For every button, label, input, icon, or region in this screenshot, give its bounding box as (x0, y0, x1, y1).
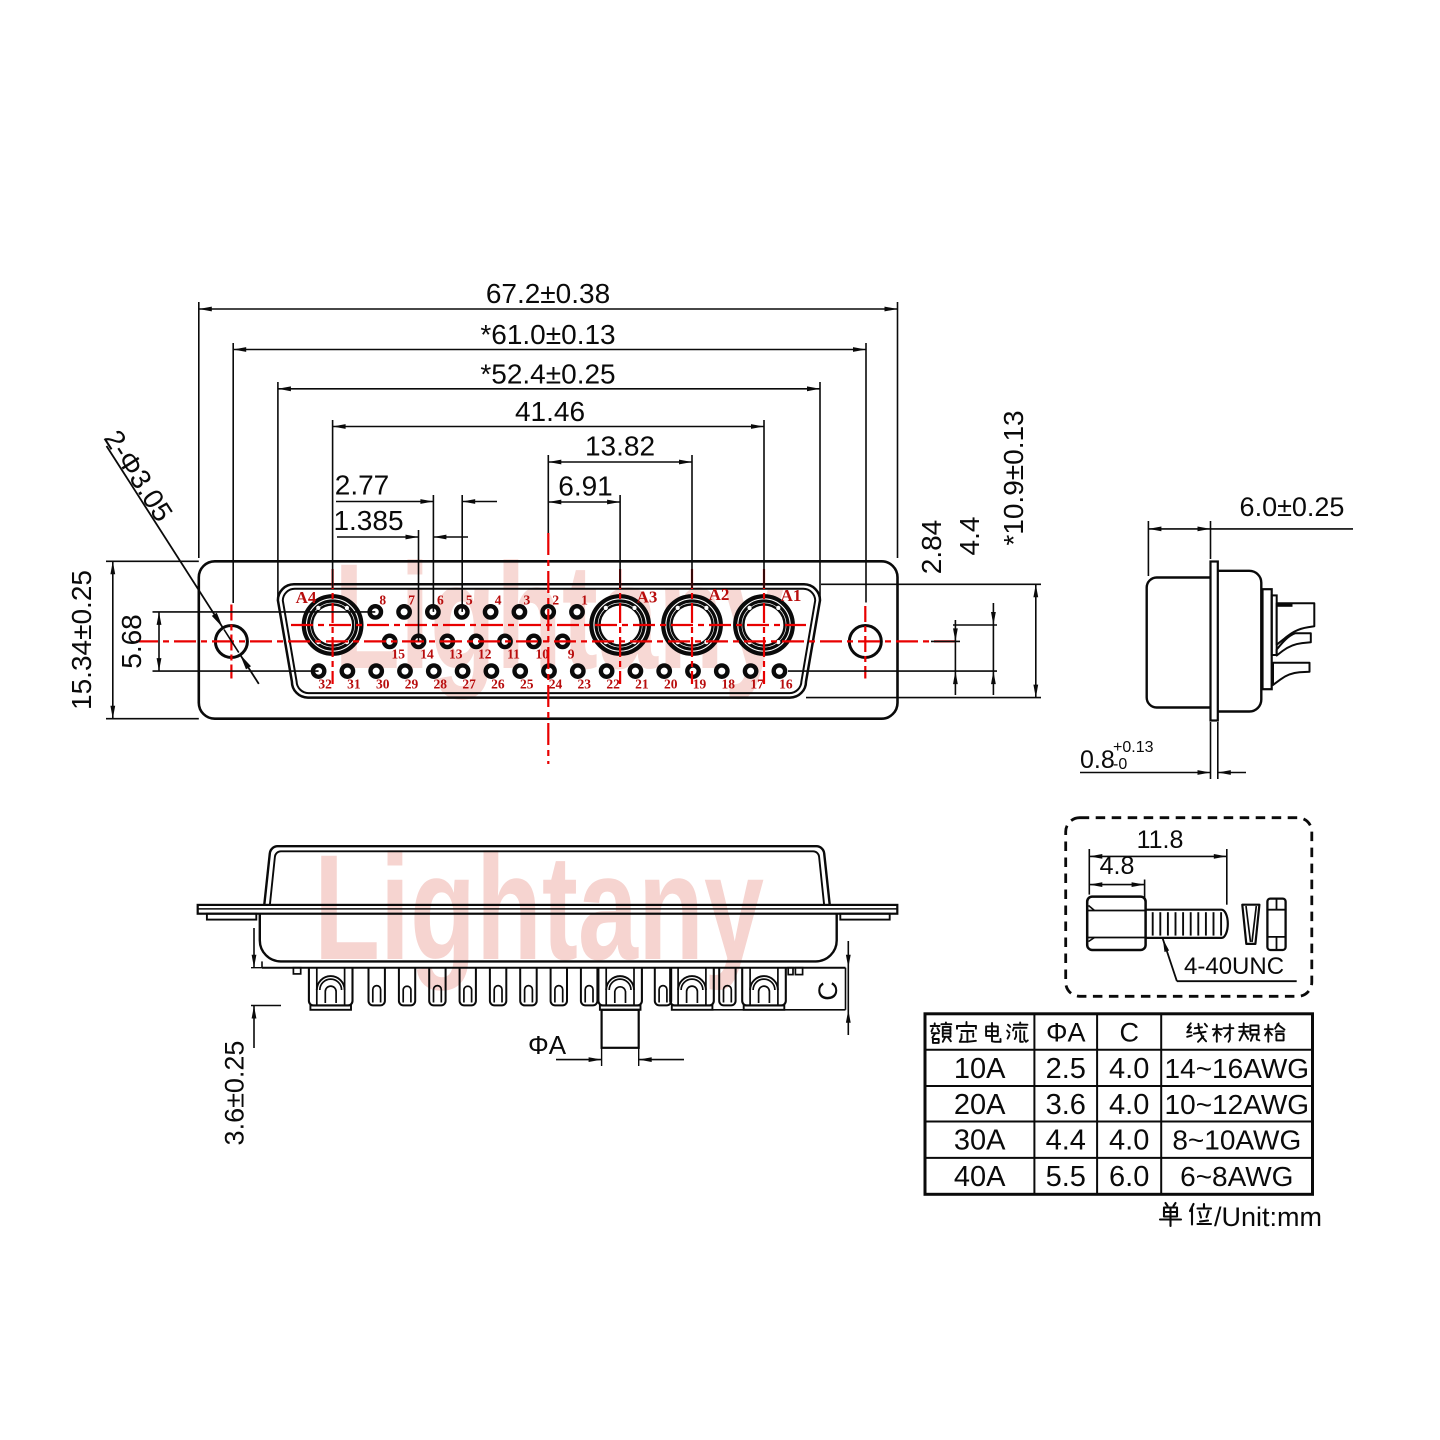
svg-text:A4: A4 (296, 588, 317, 607)
svg-text:3.6: 3.6 (1046, 1089, 1086, 1121)
svg-text:*52.4±0.25: *52.4±0.25 (480, 359, 615, 390)
svg-text:2.5: 2.5 (1046, 1053, 1086, 1085)
svg-text:6.0: 6.0 (1109, 1161, 1149, 1193)
svg-text:4.0: 4.0 (1109, 1053, 1149, 1085)
svg-text:A3: A3 (637, 588, 658, 607)
svg-text:2.84: 2.84 (916, 520, 947, 575)
svg-text:26: 26 (491, 677, 505, 692)
svg-text:2.77: 2.77 (335, 470, 390, 501)
svg-text:1: 1 (581, 593, 588, 608)
svg-text:5.5: 5.5 (1046, 1161, 1086, 1193)
svg-text:23: 23 (578, 677, 592, 692)
svg-text:22: 22 (606, 677, 620, 692)
svg-text:11: 11 (507, 647, 520, 662)
svg-text:20A: 20A (954, 1089, 1006, 1121)
svg-text:4: 4 (495, 593, 502, 608)
svg-text:4.0: 4.0 (1109, 1125, 1149, 1157)
svg-text:Lightany: Lightany (314, 823, 764, 991)
svg-text:1.385: 1.385 (333, 505, 403, 536)
svg-text:27: 27 (462, 677, 476, 692)
svg-text:2: 2 (552, 593, 559, 608)
svg-text:3.6±0.25: 3.6±0.25 (220, 1041, 250, 1146)
svg-text:25: 25 (520, 677, 534, 692)
svg-text:*61.0±0.13: *61.0±0.13 (480, 319, 615, 350)
svg-text:8: 8 (379, 593, 386, 608)
svg-text:7: 7 (408, 593, 415, 608)
svg-text:8~10AWG: 8~10AWG (1172, 1125, 1301, 1156)
svg-text:5.68: 5.68 (116, 614, 147, 669)
svg-text:+0.13: +0.13 (1113, 739, 1154, 756)
svg-text:/Unit:mm: /Unit:mm (1214, 1202, 1322, 1232)
svg-text:17: 17 (750, 677, 764, 692)
svg-text:4.4: 4.4 (1046, 1125, 1086, 1157)
svg-text:A1: A1 (781, 586, 802, 605)
svg-text:31: 31 (347, 677, 361, 692)
svg-text:4-40UNC: 4-40UNC (1184, 953, 1284, 980)
svg-text:30: 30 (376, 677, 390, 692)
svg-text:67.2±0.38: 67.2±0.38 (486, 278, 610, 309)
svg-text:16: 16 (779, 677, 793, 692)
svg-text:10~12AWG: 10~12AWG (1165, 1089, 1309, 1120)
svg-text:18: 18 (722, 677, 736, 692)
svg-text:15.34±0.25: 15.34±0.25 (66, 570, 97, 710)
svg-text:40A: 40A (954, 1161, 1006, 1193)
svg-text:-0: -0 (1113, 756, 1127, 773)
svg-text:*10.9±0.13: *10.9±0.13 (998, 410, 1029, 545)
svg-text:C: C (1119, 1018, 1139, 1048)
svg-text:32: 32 (318, 677, 332, 692)
svg-text:10A: 10A (954, 1053, 1006, 1085)
svg-text:9: 9 (568, 647, 575, 662)
svg-text:11.8: 11.8 (1137, 826, 1184, 854)
svg-text:0.8: 0.8 (1080, 746, 1115, 774)
svg-text:29: 29 (405, 677, 419, 692)
svg-text:15: 15 (391, 647, 405, 662)
svg-text:6.0±0.25: 6.0±0.25 (1240, 492, 1345, 522)
svg-text:ΦA: ΦA (1046, 1018, 1086, 1048)
svg-text:4.0: 4.0 (1109, 1089, 1149, 1121)
svg-text:13.82: 13.82 (585, 431, 655, 462)
svg-text:14~16AWG: 14~16AWG (1165, 1053, 1309, 1084)
svg-text:4.4: 4.4 (954, 517, 985, 556)
svg-text:4.8: 4.8 (1100, 852, 1135, 880)
svg-text:14: 14 (420, 647, 434, 662)
svg-text:6.91: 6.91 (558, 471, 613, 502)
svg-text:20: 20 (664, 677, 678, 692)
svg-text:ΦA: ΦA (528, 1030, 567, 1060)
svg-text:5: 5 (466, 593, 473, 608)
svg-text:C: C (813, 981, 843, 1001)
svg-text:41.46: 41.46 (515, 396, 585, 427)
svg-text:6: 6 (437, 593, 444, 608)
svg-text:28: 28 (434, 677, 448, 692)
svg-text:13: 13 (449, 647, 463, 662)
svg-text:12: 12 (478, 647, 492, 662)
svg-text:6~8AWG: 6~8AWG (1180, 1161, 1293, 1192)
svg-text:3: 3 (524, 593, 531, 608)
svg-text:A2: A2 (709, 585, 730, 604)
svg-text:21: 21 (635, 677, 649, 692)
svg-text:19: 19 (693, 677, 707, 692)
svg-text:24: 24 (549, 677, 563, 692)
svg-text:30A: 30A (954, 1125, 1006, 1157)
